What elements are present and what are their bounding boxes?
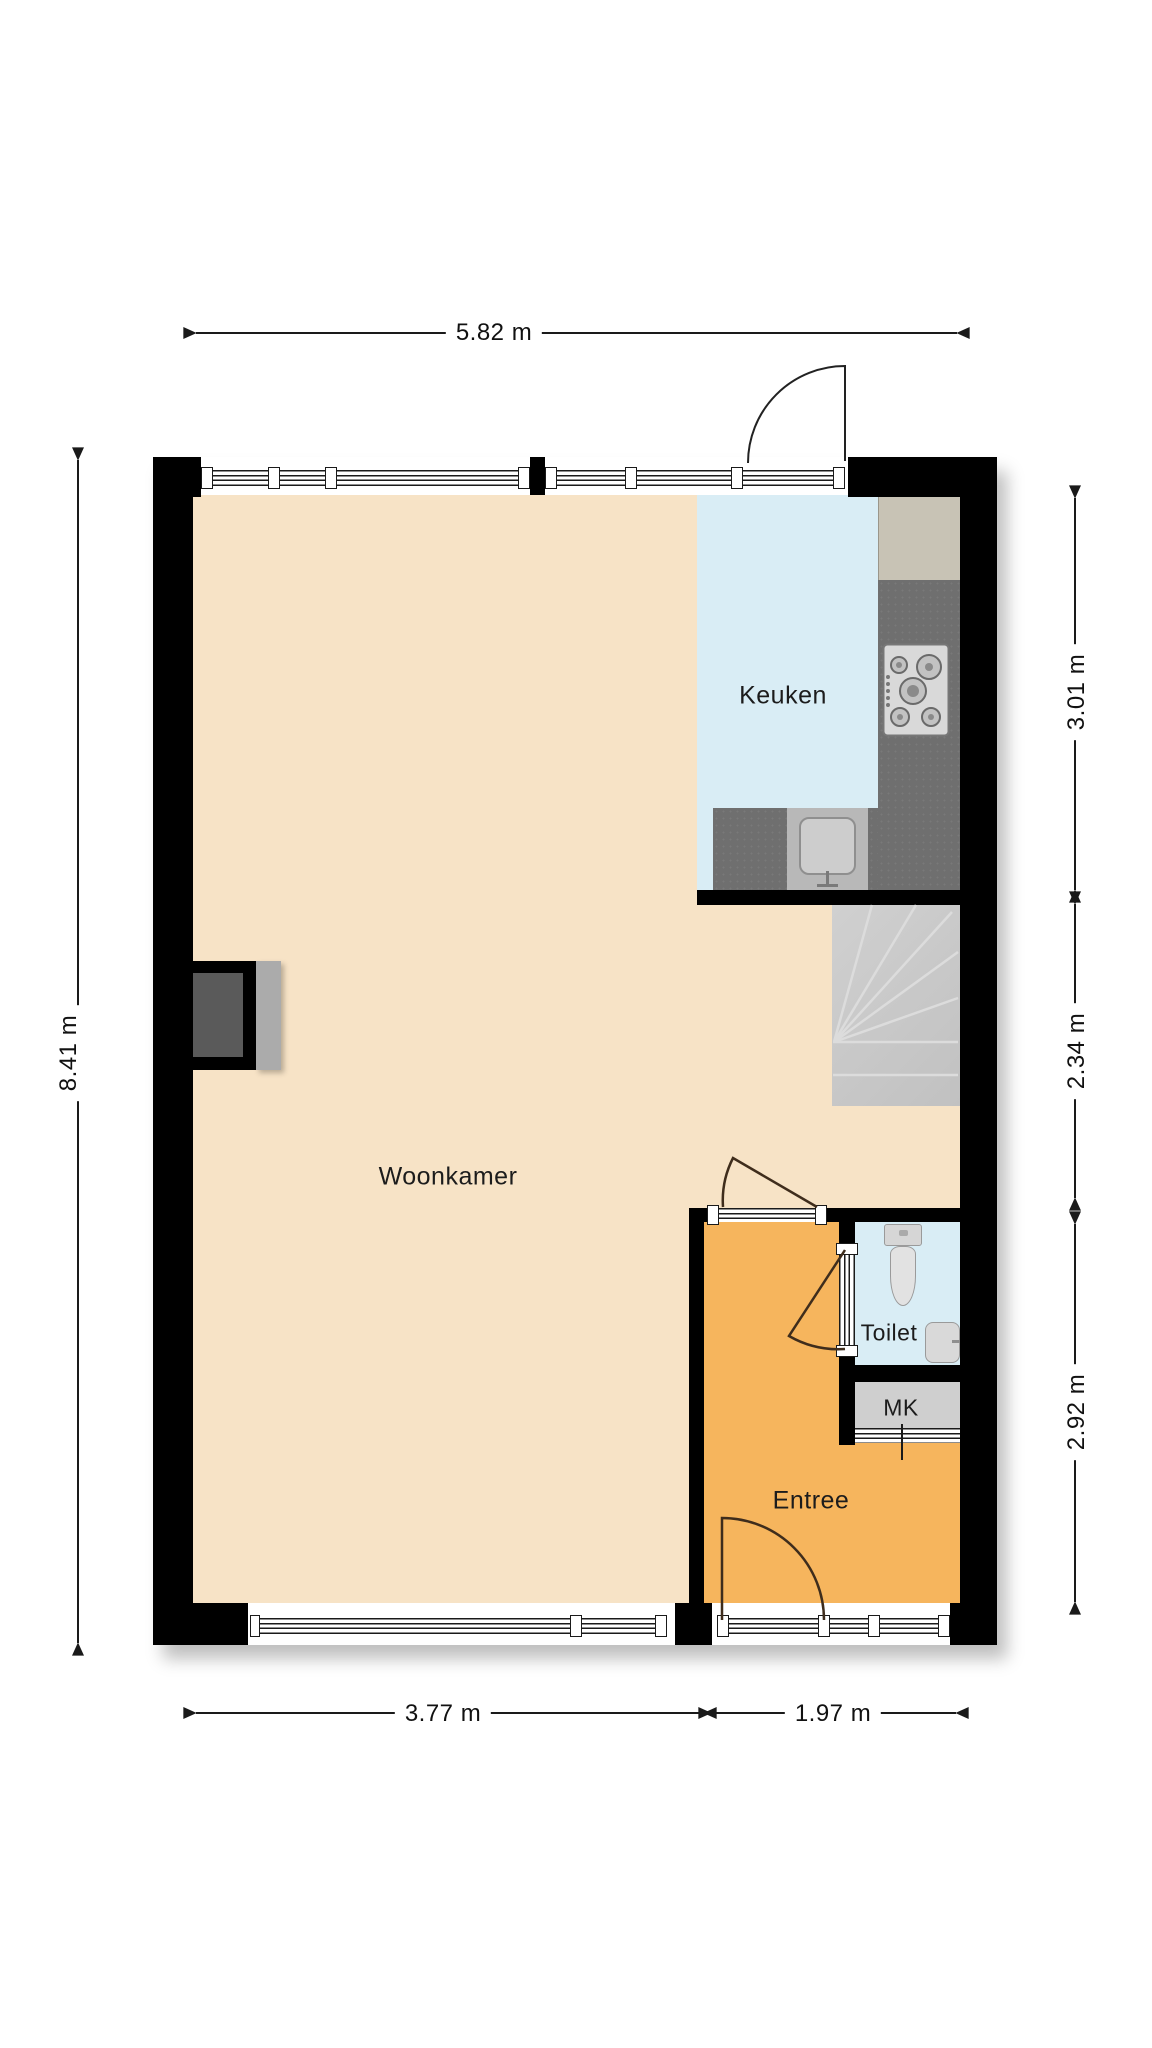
- window-mullion: [938, 1615, 950, 1637]
- kitchen-sink-basin: [799, 817, 856, 875]
- door-jamb: [836, 1345, 858, 1357]
- window-mullion: [250, 1615, 260, 1637]
- kitchen-sink-faucet-cross-icon: [817, 884, 838, 887]
- gas-hob-icon: [882, 643, 950, 737]
- window-top-kitchen: [545, 470, 743, 486]
- door-jamb: [818, 1615, 830, 1637]
- window-mullion: [268, 467, 280, 489]
- label-entree: Entree: [773, 1487, 850, 1516]
- kitchen-counter-bottom-left: [713, 808, 787, 893]
- window-bottom-living: [250, 1618, 667, 1634]
- window-mullion: [325, 467, 337, 489]
- wall-toilet-upper: [839, 1222, 855, 1243]
- kitchen-counter-bottom-right: [868, 808, 878, 893]
- dimension-right-kitchen: 3.01 m: [1061, 644, 1093, 740]
- mk-door: [855, 1428, 960, 1443]
- staircase: [832, 905, 960, 1106]
- window-mullion: [518, 467, 530, 489]
- window-mullion: [570, 1615, 582, 1637]
- toilet-bowl: [890, 1246, 916, 1306]
- window-mullion: [868, 1615, 880, 1637]
- window-top-living: [201, 470, 530, 486]
- door-jamb: [815, 1205, 827, 1225]
- wall-toilet-mk-divider: [839, 1365, 960, 1382]
- tall-cabinet: [878, 497, 960, 580]
- door-jamb: [717, 1615, 729, 1637]
- label-woonkamer: Woonkamer: [379, 1163, 518, 1192]
- washbasin-tap-icon: [952, 1340, 960, 1343]
- interior-door: [707, 1208, 827, 1222]
- window-mullion: [201, 467, 213, 489]
- fireplace-hearth: [256, 961, 281, 1070]
- wall-kitchen-bottom: [697, 890, 960, 905]
- door-jamb: [707, 1205, 719, 1225]
- kitchen-sink-unit: [787, 808, 868, 893]
- dimension-top-width: 5.82 m: [446, 317, 542, 349]
- back-door-swing: [748, 366, 845, 463]
- back-door: [743, 470, 845, 486]
- door-jamb: [833, 467, 845, 489]
- dimension-left-height: 8.41 m: [53, 1005, 85, 1101]
- door-jamb: [836, 1243, 858, 1255]
- fireplace-inset: [193, 973, 243, 1057]
- floorplan-canvas: Woonkamer Keuken Toilet MK Entree 5.82 m…: [0, 0, 1152, 2048]
- window-mullion: [545, 467, 557, 489]
- wall-top-pier: [530, 457, 545, 495]
- dimension-bottom-livingroom: 3.77 m: [395, 1698, 491, 1730]
- front-door: [717, 1618, 830, 1634]
- dimension-right-stairs: 2.34 m: [1061, 1003, 1093, 1099]
- window-mullion: [655, 1615, 667, 1637]
- label-keuken: Keuken: [739, 682, 827, 711]
- wall-corner-bottom-right: [950, 1603, 997, 1645]
- wall-corner-bottom-left: [153, 1603, 248, 1645]
- wall-right: [960, 457, 997, 1643]
- dimension-bottom-entree: 1.97 m: [785, 1698, 881, 1730]
- label-toilet: Toilet: [861, 1320, 918, 1347]
- dimension-right-entree: 2.92 m: [1061, 1364, 1093, 1460]
- toilet-door: [839, 1243, 855, 1357]
- wall-entree-left: [689, 1222, 704, 1603]
- window-mullion: [731, 467, 743, 489]
- wall-left: [153, 457, 193, 1645]
- wall-bottom-pier: [675, 1603, 712, 1645]
- window-mullion: [625, 467, 637, 489]
- wall-corner-top-left: [153, 457, 201, 497]
- window-bottom-entree: [830, 1618, 950, 1634]
- toilet-flush-button-icon: [899, 1230, 908, 1236]
- wall-entree-top-left: [689, 1208, 707, 1222]
- label-mk: MK: [883, 1395, 919, 1422]
- wall-entree-top-right: [827, 1208, 960, 1222]
